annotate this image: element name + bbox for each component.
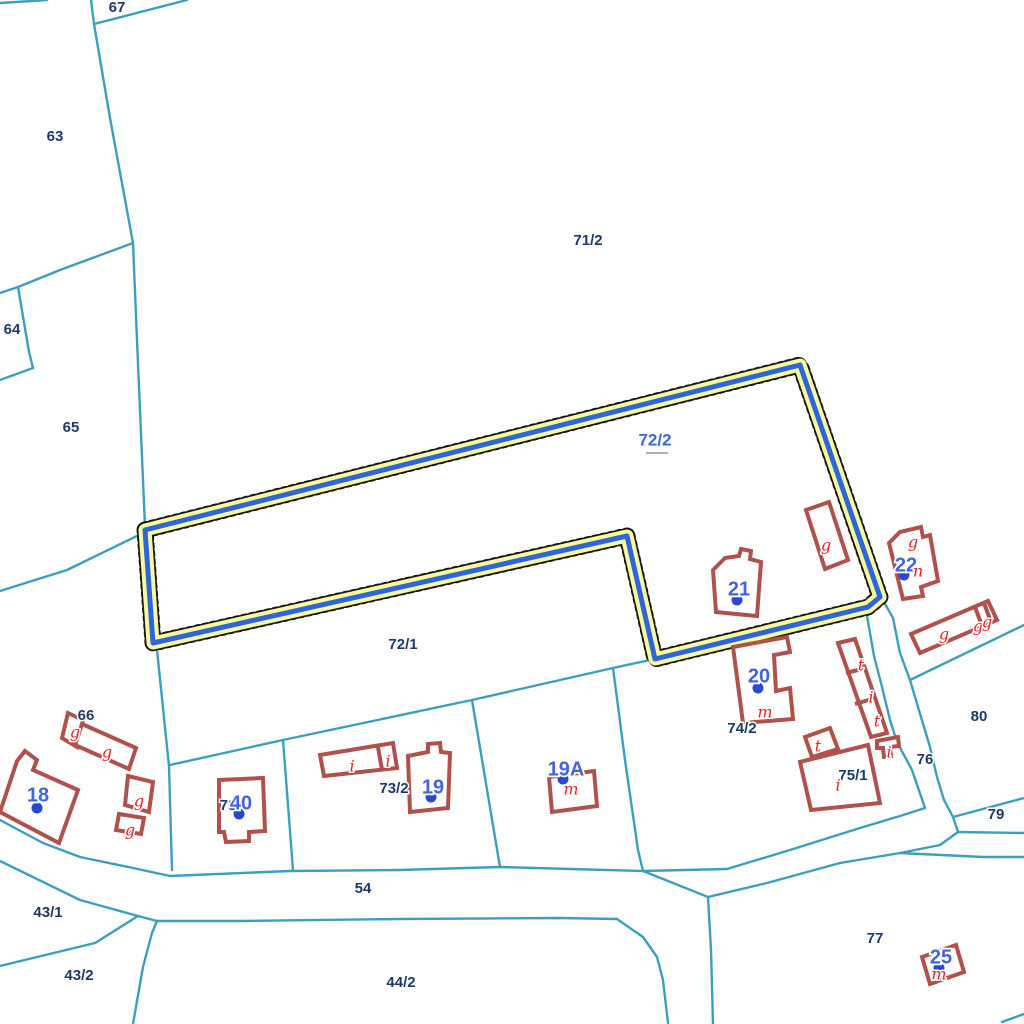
map-background	[0, 0, 1024, 1024]
building-use-label-i: i	[349, 757, 354, 776]
parcel-label-74-2: 74/2	[727, 720, 756, 737]
building-use-label-t: t	[858, 656, 865, 675]
building-use-label-g: g	[70, 723, 80, 742]
building-use-label-g: g	[939, 625, 949, 644]
building-use-label-g: g	[821, 536, 831, 555]
building-use-label-i: i	[835, 776, 840, 795]
parcel-label-71-2: 71/2	[573, 232, 602, 249]
parcel-label-43-2: 43/2	[64, 967, 93, 984]
building-use-label-i: i	[868, 688, 873, 707]
building-use-label-g: g	[134, 792, 144, 811]
parcel-label-67: 67	[109, 0, 126, 16]
building-use-label-g: g	[982, 613, 992, 632]
house-number-18: 18	[27, 784, 49, 806]
building-use-label-t: t	[874, 712, 881, 731]
parcel-label-64: 64	[4, 321, 21, 338]
parcel-label-80: 80	[971, 708, 988, 725]
house-number-20: 20	[748, 665, 770, 687]
house-number-40: 40	[230, 792, 252, 814]
house-number-19A: 19A	[548, 758, 585, 780]
building-use-label-g: g	[125, 821, 135, 840]
building-use-label-i: i	[886, 743, 891, 762]
cadastral-map-canvas[interactable]: 6763646571/272/1667373/274/275/176807977…	[0, 0, 1024, 1024]
building-use-label-g: g	[908, 533, 918, 552]
parcel-label-73-2: 73/2	[379, 780, 408, 797]
parcel-label-54: 54	[355, 880, 372, 897]
parcel-label-63: 63	[47, 128, 64, 145]
parcel-label-79: 79	[988, 806, 1005, 823]
parcel-label-44-2: 44/2	[386, 974, 415, 991]
selected-parcel-label: 72/2	[638, 430, 671, 449]
building-use-label-i: i	[385, 752, 390, 771]
house-number-21: 21	[728, 578, 750, 600]
parcel-label-77: 77	[867, 930, 884, 947]
parcel-label-76: 76	[917, 751, 934, 768]
parcel-label-72-1: 72/1	[388, 636, 417, 653]
building-use-label-t: t	[815, 737, 822, 756]
building-use-label-m: m	[931, 965, 946, 984]
house-number-19: 19	[422, 776, 444, 798]
building-use-label-m: m	[563, 780, 578, 799]
parcel-label-66: 66	[78, 707, 95, 724]
parcel-label-65: 65	[63, 419, 80, 436]
building-use-label-n: n	[913, 562, 923, 581]
cadastral-map-svg: 6763646571/272/1667373/274/275/176807977…	[0, 0, 1024, 1024]
parcel-label-43-1: 43/1	[33, 904, 62, 921]
parcel-label-75-1: 75/1	[838, 767, 867, 784]
building-use-label-g: g	[102, 743, 112, 762]
building-use-label-m: m	[757, 703, 772, 722]
